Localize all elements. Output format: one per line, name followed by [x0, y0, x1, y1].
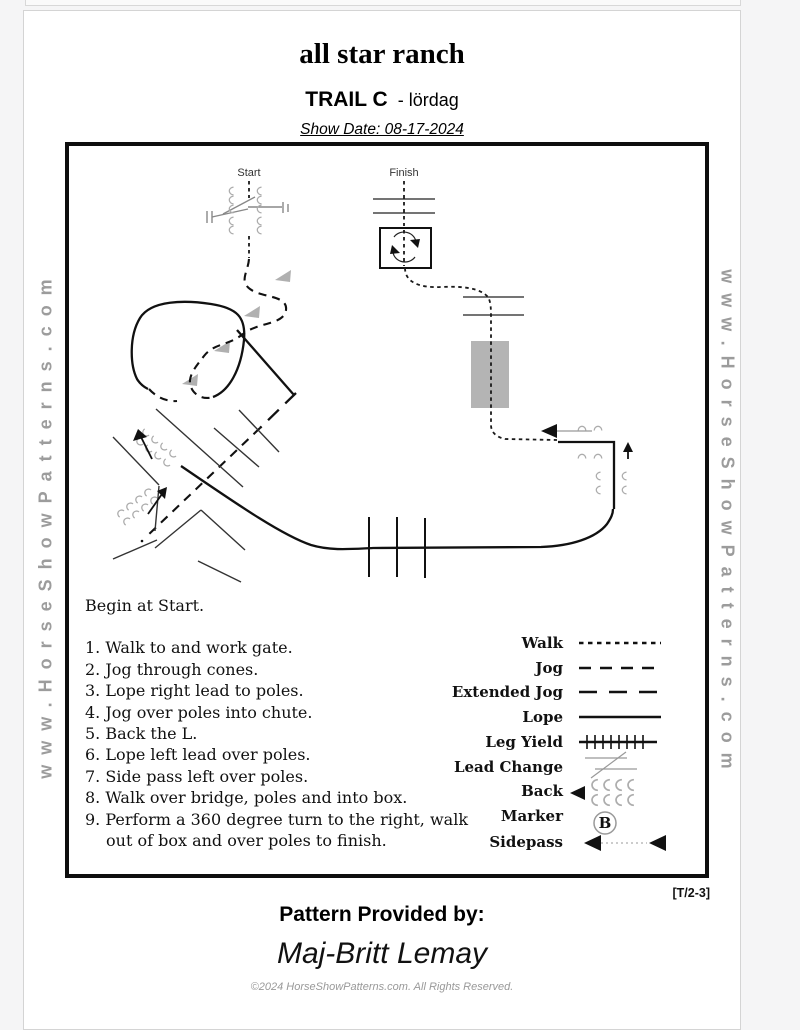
page-title: all star ranch: [24, 38, 740, 71]
instruction-step: 5. Back the L.: [85, 723, 487, 744]
instruction-step: 9. Perform a 360 degree turn to the righ…: [85, 809, 487, 852]
provided-by-name: Maj-Britt Lemay: [24, 937, 740, 971]
legend-symbol-lead-change: [585, 752, 637, 778]
finish-label: Finish: [389, 167, 418, 179]
legend-symbol-back: [570, 780, 634, 806]
gate-obstacle: [207, 197, 288, 223]
legend-label-sidepass: Sidepass: [489, 833, 563, 851]
instructions: Begin at Start. 1. Walk to and work gate…: [85, 595, 487, 851]
instruction-step: 2. Jog through cones.: [85, 659, 487, 680]
copyright-notice: ©2024 HorseShowPatterns.com. All Rights …: [24, 981, 740, 993]
instruction-step: 7. Side pass left over poles.: [85, 766, 487, 787]
legend-label-jog: Jog: [533, 659, 563, 677]
legend-label-back: Back: [521, 782, 564, 800]
legend-symbol-marker: B: [594, 812, 616, 834]
trail-class-label: TRAIL C: [305, 88, 387, 111]
previous-page-edge: [25, 0, 741, 6]
back-l-arrows: [133, 429, 167, 514]
show-date: Show Date: 08-17-2024: [24, 121, 740, 139]
start-label: Start: [237, 167, 260, 179]
legend-symbol-sidepass: [584, 835, 666, 851]
legend-label-marker: Marker: [501, 807, 564, 825]
instructions-intro: Begin at Start.: [85, 595, 487, 616]
provided-by-label: Pattern Provided by:: [24, 903, 740, 927]
legend-label-lope: Lope: [522, 708, 563, 726]
bridge-obstacle: [471, 341, 509, 408]
trail-day-label: - lördag: [398, 90, 459, 110]
walk-poles: [373, 199, 524, 315]
marker-letter: B: [599, 814, 612, 832]
instruction-step: 4. Jog over poles into chute.: [85, 702, 487, 723]
pattern-subtitle: TRAIL C- lördag: [24, 88, 740, 112]
lope-bottom-path: [181, 466, 613, 578]
instruction-step: 6. Lope left lead over poles.: [85, 744, 487, 765]
instruction-step: 1. Walk to and work gate.: [85, 637, 487, 658]
pattern-page: all star ranch TRAIL C- lördag Show Date…: [23, 10, 741, 1030]
sidepass-obstacle: [541, 424, 633, 509]
instruction-step: 8. Walk over bridge, poles and into box.: [85, 787, 487, 808]
legend-label-leg-yield: Leg Yield: [485, 733, 563, 751]
back-l-hoofprints: [116, 429, 176, 525]
pattern-code: [T/2-3]: [673, 886, 711, 900]
legend-symbol-leg-yield: [579, 735, 657, 749]
instruction-step: 3. Lope right lead to poles.: [85, 680, 487, 701]
turn-box-obstacle: [380, 228, 431, 268]
lope-loop: [132, 302, 294, 397]
jog-serpentine: [149, 259, 286, 401]
gate-hoofprints: [229, 187, 261, 234]
legend-label-walk: Walk: [521, 634, 564, 652]
